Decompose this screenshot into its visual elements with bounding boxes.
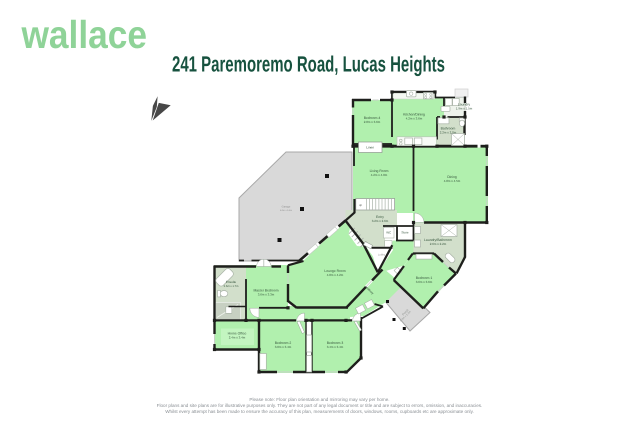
svg-text:4.8m x 4.2m: 4.8m x 4.2m xyxy=(327,273,344,277)
svg-text:6.0m x 5.5m: 6.0m x 5.5m xyxy=(280,209,292,212)
svg-text:Ensuite: Ensuite xyxy=(226,280,237,284)
svg-text:4.2m x 4.0m: 4.2m x 4.0m xyxy=(371,173,388,177)
svg-text:Lobby: Lobby xyxy=(378,254,386,257)
svg-text:4.8m x 4.5m: 4.8m x 4.5m xyxy=(444,179,461,183)
svg-text:Linen: Linen xyxy=(366,146,374,150)
svg-text:Garage: Garage xyxy=(282,206,291,209)
svg-text:up: up xyxy=(359,203,363,207)
svg-text:WC: WC xyxy=(386,231,392,235)
svg-text:3.2m x 2.6m: 3.2m x 2.6m xyxy=(372,219,389,223)
svg-text:3.6m x 3.6m: 3.6m x 3.6m xyxy=(416,280,433,284)
svg-text:4.2m x 3.6m: 4.2m x 3.6m xyxy=(406,117,423,121)
svg-text:241 Paremoremo Road, Lucas Hei: 241 Paremoremo Road, Lucas Heights xyxy=(172,52,445,77)
svg-text:2.2m x 2.0m: 2.2m x 2.0m xyxy=(440,131,457,135)
svg-text:2.6m x 1.7m: 2.6m x 1.7m xyxy=(224,285,240,288)
svg-text:3.0m x 3.4m: 3.0m x 3.4m xyxy=(275,345,292,349)
svg-text:2.6m x 2.2m: 2.6m x 2.2m xyxy=(430,242,447,246)
svg-text:3.6m x 3.3m: 3.6m x 3.3m xyxy=(258,293,275,297)
svg-text:2.8m x 3.6m: 2.8m x 3.6m xyxy=(364,120,381,124)
svg-text:Store: Store xyxy=(401,231,409,235)
svg-text:wallace: wallace xyxy=(21,14,147,57)
svg-text:3.4m x 3.4m: 3.4m x 3.4m xyxy=(327,345,344,349)
svg-text:1.9m x 1.5m: 1.9m x 1.5m xyxy=(456,107,473,111)
svg-text:2.4m x 3.4m: 2.4m x 3.4m xyxy=(229,336,246,340)
